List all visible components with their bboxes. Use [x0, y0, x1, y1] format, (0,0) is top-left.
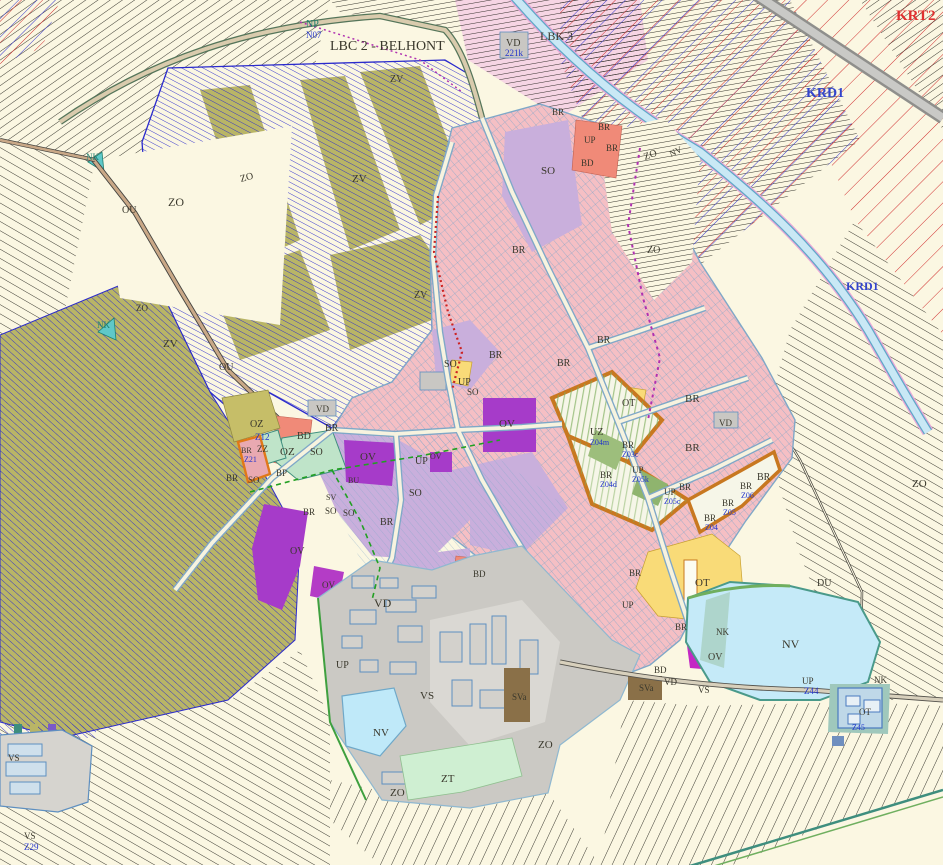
- zone-label: OT: [859, 707, 871, 717]
- zone-label: NK: [716, 627, 729, 637]
- zone-label: SVa: [639, 683, 654, 693]
- zone-label: NV: [373, 727, 389, 739]
- zone-label: Z04d: [600, 480, 617, 489]
- zone-label: NP: [306, 19, 319, 30]
- zone-label: ZZ: [257, 444, 268, 454]
- zone-label: SO: [467, 387, 479, 397]
- zone-label: LBK 3: [540, 29, 573, 43]
- zone-label: OZ: [280, 446, 295, 458]
- zone-label: ZV: [414, 290, 428, 301]
- zone-label: OV: [708, 652, 723, 663]
- zone-label: BR: [675, 622, 687, 632]
- zone-label: UP: [802, 676, 814, 686]
- zone-label: KRD1: [806, 86, 844, 101]
- zone-label: BR: [241, 446, 252, 455]
- zone-label: UP: [415, 456, 428, 467]
- zone-label: UP: [336, 660, 349, 671]
- zone-label: OT: [695, 577, 710, 589]
- zone-label: Z06: [741, 491, 754, 500]
- zone-label: OU: [219, 362, 234, 373]
- zone-label: ZV: [390, 74, 404, 85]
- zoning-map: NPN07LBC 2 - BELHONTLBK 3KRT2KRD1KRD1VD2…: [0, 0, 943, 865]
- zone-label: BR: [552, 107, 564, 117]
- zone-label: BR: [722, 498, 734, 508]
- zone-label: BR: [606, 143, 618, 153]
- zone-label: OV: [290, 546, 305, 557]
- zone-label: ZO: [647, 245, 660, 256]
- zone-label: SO: [310, 447, 323, 458]
- zone-label: Z05: [723, 508, 736, 517]
- zone-label: Z12: [255, 432, 270, 442]
- depot-vs: [0, 724, 96, 812]
- zone-label: DU: [817, 578, 832, 589]
- zone-label: BP: [276, 468, 287, 478]
- zone-label: OV: [499, 418, 515, 430]
- zone-label: BR: [598, 122, 610, 132]
- zone-label: BR: [629, 568, 641, 578]
- zone-label: Z04m: [590, 438, 610, 447]
- zone-label: Z04: [705, 523, 718, 532]
- zone-label: NV: [782, 637, 800, 651]
- zone-label: VD: [719, 418, 732, 428]
- zone-label: VS: [698, 685, 710, 695]
- zone-label: N07: [306, 30, 322, 40]
- zone-label: NK: [97, 320, 110, 330]
- zone-label: VD: [316, 404, 329, 414]
- zone-label: SO: [409, 488, 422, 499]
- zone-label: OU: [122, 205, 137, 216]
- zone-label: OV: [430, 452, 442, 461]
- zone-label: UP: [632, 465, 644, 475]
- zone-label: BR: [622, 440, 634, 450]
- zone-label: BR: [557, 358, 571, 369]
- zone-label: BR: [597, 335, 611, 346]
- zone-label: BR: [489, 350, 503, 361]
- zone-label: BR: [325, 423, 339, 434]
- zone-label: Z05k: [632, 475, 649, 484]
- zone-label: Z44: [804, 686, 819, 696]
- zone-label: Z45: [852, 723, 865, 732]
- zone-label: VD: [664, 677, 677, 687]
- map-viewport[interactable]: NPN07LBC 2 - BELHONTLBK 3KRT2KRD1KRD1VD2…: [0, 0, 943, 865]
- zone-label: OV: [322, 580, 335, 590]
- zone-label: LBC 2 - BELHONT: [330, 39, 445, 54]
- zone-label: ZO: [136, 303, 148, 313]
- zone-zo-patch: [96, 126, 292, 325]
- zone-label: BD: [297, 431, 311, 442]
- zone-label: BR: [740, 481, 752, 491]
- zone-label: 221k: [505, 48, 524, 58]
- zone-label: SO: [248, 475, 260, 485]
- zone-label: BD: [473, 569, 486, 579]
- zone-label: Z03c: [622, 450, 639, 459]
- zone-label: VS: [8, 753, 20, 763]
- zone-label: BR: [704, 513, 716, 523]
- zone-label: BR: [380, 517, 394, 528]
- zone-label: BR: [685, 393, 700, 405]
- zone-label: BR: [600, 470, 612, 480]
- zone-label: SO: [541, 165, 555, 177]
- zone-label: KRT2: [896, 8, 935, 24]
- zone-label: BD: [581, 158, 594, 168]
- zone-label: BR: [685, 442, 700, 454]
- zone-label: ZO: [390, 787, 405, 799]
- zone-label: OT: [622, 398, 635, 409]
- zone-label: UZ: [590, 427, 603, 438]
- zone-label: Z05c: [664, 497, 681, 506]
- zone-label: ZT: [441, 773, 455, 785]
- zone-label: Z29: [24, 842, 39, 852]
- zone-label: ZO: [538, 739, 553, 751]
- zone-label: ZO: [168, 195, 184, 209]
- zone-label: VD: [374, 596, 392, 610]
- zone-label: NK: [86, 152, 99, 162]
- zone-label: BR: [303, 507, 315, 517]
- zone-label: UP: [584, 135, 596, 145]
- zone-label: VS: [24, 831, 36, 841]
- zone-label: NK: [874, 675, 887, 685]
- zone-label: BR: [226, 473, 238, 483]
- zone-label: VS: [420, 690, 434, 702]
- zone-label: ZO: [912, 478, 927, 490]
- zone-label: BR: [512, 245, 526, 256]
- zone-label: Z21: [244, 455, 257, 464]
- zone-label: ZV: [352, 173, 367, 185]
- zone-label: SVa: [512, 692, 527, 702]
- zone-label: OV: [360, 451, 376, 463]
- zone-label: BR: [757, 472, 771, 483]
- zone-label: BD: [654, 665, 667, 675]
- zone-label: SO: [343, 508, 355, 518]
- zone-label: SV: [326, 493, 336, 502]
- zone-label: BR: [679, 482, 691, 492]
- zone-label: SO: [444, 359, 457, 370]
- zone-label: KRD1: [846, 279, 879, 293]
- zone-label: BU: [348, 476, 359, 485]
- zone-label: UP: [622, 600, 634, 610]
- zone-label: ZV: [163, 338, 178, 350]
- zone-label: UP: [664, 487, 676, 497]
- zone-label: SO: [325, 506, 337, 516]
- zone-label: OZ: [250, 419, 263, 430]
